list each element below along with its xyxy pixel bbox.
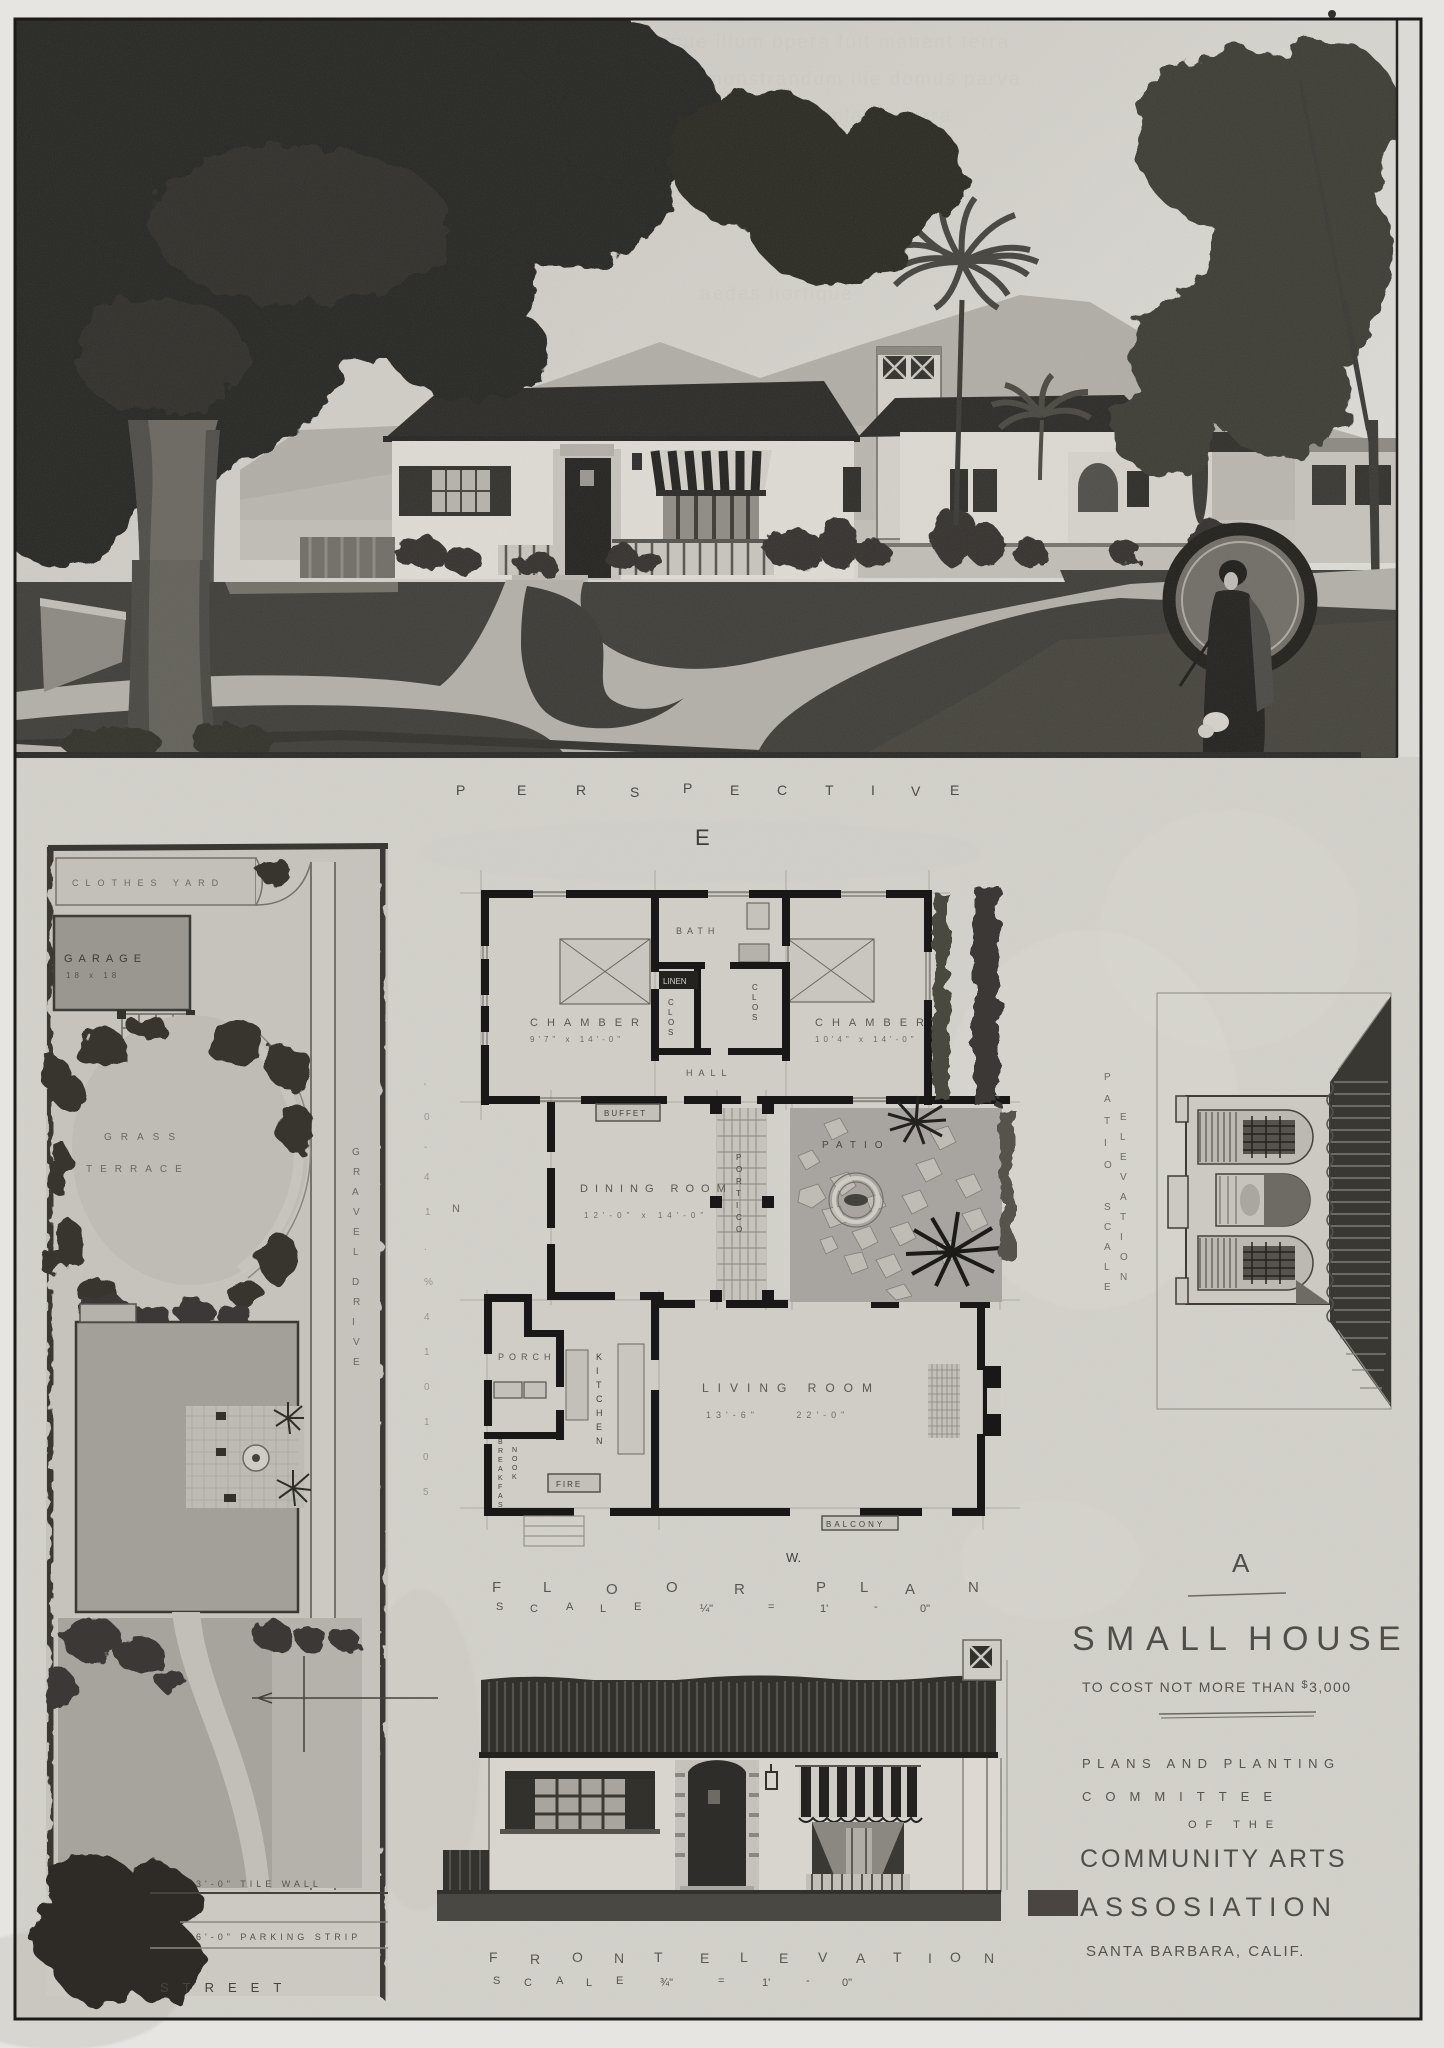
- svg-text:4: 4: [424, 1312, 430, 1323]
- svg-text:R: R: [530, 1951, 540, 1967]
- svg-text:E: E: [950, 782, 959, 798]
- svg-text:E: E: [1104, 1282, 1111, 1293]
- svg-text:O: O: [736, 1225, 742, 1234]
- svg-text:TO COST NOT MORE THAN $3,000: TO COST NOT MORE THAN $3,000: [1082, 1679, 1352, 1695]
- svg-text:12'-0" x 14'-0": 12'-0" x 14'-0": [584, 1211, 708, 1220]
- svg-text:O: O: [666, 1579, 678, 1596]
- svg-text:V: V: [353, 1337, 360, 1348]
- svg-text:R: R: [734, 1581, 745, 1598]
- svg-text:COMMUNITY ARTS: COMMUNITY ARTS: [1080, 1845, 1348, 1873]
- svg-text:T: T: [736, 1189, 741, 1198]
- svg-text:BUFFET: BUFFET: [604, 1109, 647, 1118]
- svg-text:A: A: [498, 1466, 503, 1473]
- svg-text:1': 1': [762, 1977, 770, 1989]
- svg-text:E: E: [634, 1601, 641, 1613]
- svg-text:5: 5: [423, 1487, 429, 1498]
- svg-text:N: N: [596, 1436, 603, 1446]
- svg-text:O: O: [950, 1949, 961, 1965]
- svg-text:HALL: HALL: [686, 1068, 733, 1078]
- svg-text:S: S: [1348, 1620, 1371, 1658]
- svg-text:S: S: [1072, 1620, 1095, 1658]
- svg-text:T: T: [825, 782, 834, 798]
- svg-text:O: O: [572, 1949, 583, 1965]
- svg-text:D: D: [352, 1277, 359, 1288]
- svg-text:S: S: [493, 1975, 500, 1987]
- svg-text:S: S: [496, 1601, 503, 1613]
- svg-text:¼": ¼": [700, 1603, 713, 1615]
- svg-text:O: O: [512, 1465, 518, 1472]
- svg-text:ASSOSIATION: ASSOSIATION: [1080, 1892, 1338, 1922]
- svg-text:BALCONY: BALCONY: [826, 1520, 885, 1529]
- svg-text:C: C: [752, 983, 758, 992]
- svg-text:C: C: [668, 998, 674, 1007]
- svg-text:F: F: [489, 1949, 498, 1965]
- svg-text:P: P: [456, 782, 465, 798]
- svg-text:=: =: [768, 1601, 774, 1613]
- svg-text:TERRACE: TERRACE: [86, 1164, 190, 1175]
- svg-text:C: C: [524, 1977, 532, 1989]
- svg-text:S: S: [498, 1502, 503, 1509]
- svg-text:1: 1: [424, 1417, 430, 1428]
- svg-text:E: E: [1378, 1620, 1401, 1658]
- svg-text:M: M: [1106, 1620, 1134, 1658]
- svg-text:1: 1: [425, 1207, 431, 1218]
- svg-text:C: C: [596, 1394, 603, 1404]
- svg-text:I: I: [928, 1950, 932, 1966]
- svg-text:T: T: [654, 1949, 663, 1965]
- svg-text:E: E: [779, 1950, 788, 1966]
- svg-text:L: L: [1208, 1620, 1227, 1658]
- svg-text:I: I: [736, 1201, 738, 1210]
- svg-text:P: P: [683, 780, 692, 796]
- svg-text:10'4" x 14'-0": 10'4" x 14'-0": [815, 1035, 918, 1044]
- svg-text:T: T: [893, 1949, 902, 1965]
- svg-text:O: O: [752, 1003, 758, 1012]
- svg-text:H: H: [596, 1408, 603, 1418]
- svg-text:I: I: [1104, 1138, 1107, 1149]
- svg-text:=: =: [718, 1975, 724, 1987]
- svg-text:A: A: [352, 1187, 359, 1198]
- svg-text:I: I: [871, 782, 875, 798]
- svg-text:K: K: [498, 1475, 503, 1482]
- svg-text:N: N: [968, 1579, 979, 1596]
- svg-text:A: A: [566, 1601, 574, 1613]
- svg-text:L: L: [668, 1008, 673, 1017]
- svg-text:V: V: [353, 1207, 360, 1218]
- svg-text:6'-0" PARKING STRIP: 6'-0" PARKING STRIP: [196, 1932, 361, 1942]
- svg-text:P: P: [1104, 1072, 1111, 1083]
- svg-text:-: -: [874, 1601, 878, 1613]
- svg-text:LINEN: LINEN: [663, 977, 687, 986]
- svg-text:S: S: [752, 1013, 757, 1022]
- svg-text:L: L: [1180, 1620, 1199, 1658]
- svg-text:O: O: [668, 1018, 674, 1027]
- svg-text:F: F: [498, 1484, 502, 1491]
- svg-text:.: .: [424, 1242, 427, 1253]
- svg-text:': ': [424, 1082, 426, 1093]
- svg-text:DINING ROOM: DINING ROOM: [580, 1183, 733, 1195]
- svg-text:0: 0: [423, 1452, 429, 1463]
- svg-text:L: L: [1104, 1262, 1110, 1273]
- svg-text:S: S: [1104, 1202, 1111, 1213]
- svg-text:W.: W.: [786, 1550, 801, 1565]
- svg-text:A: A: [905, 1581, 915, 1598]
- svg-text:18 x 18: 18 x 18: [66, 971, 120, 980]
- svg-text:V: V: [1120, 1172, 1127, 1183]
- svg-text:S: S: [630, 784, 639, 800]
- svg-text:R: R: [576, 782, 586, 798]
- svg-text:0": 0": [842, 1977, 852, 1989]
- svg-text:N: N: [512, 1447, 517, 1454]
- svg-text:E: E: [353, 1227, 360, 1238]
- svg-text:N: N: [984, 1950, 994, 1966]
- svg-text:CHAMBER: CHAMBER: [815, 1017, 933, 1029]
- svg-text:I: I: [596, 1366, 599, 1376]
- svg-text:U: U: [1316, 1620, 1341, 1658]
- svg-text:C: C: [736, 1213, 742, 1222]
- svg-text:L: L: [353, 1247, 359, 1258]
- svg-text:F: F: [492, 1579, 501, 1596]
- svg-text:3'-0" TILE WALL: 3'-0" TILE WALL: [196, 1879, 322, 1889]
- svg-text:A: A: [856, 1950, 866, 1966]
- svg-text:B: B: [498, 1439, 503, 1446]
- svg-text:K: K: [596, 1352, 602, 1362]
- svg-text:R: R: [498, 1448, 503, 1455]
- svg-text:FIRE: FIRE: [556, 1480, 582, 1489]
- svg-text:0: 0: [424, 1382, 430, 1393]
- svg-text:I: I: [352, 1317, 355, 1328]
- svg-text:O: O: [1282, 1620, 1308, 1658]
- svg-text:T: T: [1104, 1116, 1110, 1127]
- svg-text:PLANS AND PLANTING: PLANS AND PLANTING: [1082, 1756, 1341, 1771]
- svg-text:BATH: BATH: [676, 926, 719, 936]
- svg-text:-: -: [806, 1975, 810, 1987]
- svg-text:13'-6" 22'-0": 13'-6" 22'-0": [706, 1410, 849, 1420]
- svg-text:K: K: [512, 1474, 517, 1481]
- svg-text:V: V: [818, 1949, 828, 1965]
- svg-text:E: E: [1120, 1152, 1127, 1163]
- svg-text:V: V: [911, 783, 921, 799]
- svg-text:O: O: [1104, 1160, 1112, 1171]
- svg-text:P: P: [736, 1153, 741, 1162]
- svg-text:1: 1: [424, 1347, 430, 1358]
- svg-text:L: L: [860, 1579, 868, 1596]
- svg-text:R: R: [353, 1297, 360, 1308]
- svg-text:E: E: [700, 1950, 709, 1966]
- svg-text:N: N: [452, 1203, 460, 1215]
- svg-text:CLOTHES YARD: CLOTHES YARD: [72, 878, 225, 888]
- svg-text:C: C: [530, 1603, 538, 1615]
- svg-text:SANTA BARBARA, CALIF.: SANTA BARBARA, CALIF.: [1086, 1943, 1305, 1960]
- svg-text:L: L: [586, 1977, 592, 1989]
- svg-text:E: E: [498, 1457, 503, 1464]
- svg-text:O: O: [512, 1456, 518, 1463]
- svg-text:N: N: [614, 1950, 624, 1966]
- svg-text:R: R: [736, 1177, 742, 1186]
- svg-text:L: L: [740, 1949, 748, 1965]
- svg-text:O: O: [1120, 1252, 1128, 1263]
- svg-text:CHAMBER: CHAMBER: [530, 1017, 648, 1029]
- svg-text:STREET: STREET: [160, 1980, 295, 1995]
- svg-text:E: E: [517, 782, 526, 798]
- svg-text:E: E: [695, 825, 710, 850]
- svg-text:O: O: [606, 1581, 618, 1598]
- svg-text:E: E: [730, 782, 739, 798]
- svg-text:L: L: [1120, 1132, 1126, 1143]
- svg-text:COMMITTEE: COMMITTEE: [1082, 1789, 1286, 1804]
- svg-text:C: C: [1104, 1222, 1111, 1233]
- svg-text:L: L: [752, 993, 757, 1002]
- svg-text:N: N: [1120, 1272, 1127, 1283]
- svg-text:4: 4: [424, 1172, 430, 1183]
- svg-text:I: I: [1120, 1232, 1123, 1243]
- svg-text:OF THE: OF THE: [1188, 1819, 1282, 1831]
- svg-text:A: A: [556, 1975, 564, 1987]
- svg-text:T: T: [1120, 1212, 1126, 1223]
- svg-text:H: H: [1248, 1620, 1273, 1658]
- svg-text:A: A: [1146, 1620, 1169, 1658]
- svg-text:A: A: [1104, 1094, 1111, 1105]
- svg-text:1': 1': [820, 1603, 828, 1615]
- svg-text:E: E: [1120, 1112, 1127, 1123]
- svg-text:A: A: [1232, 1548, 1250, 1578]
- svg-text:9'7" x 14'-0": 9'7" x 14'-0": [530, 1035, 624, 1044]
- svg-text:L: L: [543, 1579, 551, 1596]
- svg-text:R: R: [353, 1167, 360, 1178]
- svg-text:PATIO: PATIO: [822, 1140, 891, 1151]
- svg-text:0: 0: [424, 1112, 430, 1123]
- svg-text:C: C: [777, 782, 787, 798]
- svg-text:E: E: [616, 1975, 623, 1987]
- svg-text:P: P: [816, 1579, 826, 1596]
- svg-text:A: A: [1104, 1242, 1111, 1253]
- svg-text:E: E: [353, 1357, 360, 1368]
- svg-text:G: G: [352, 1147, 360, 1158]
- svg-text:A: A: [498, 1493, 503, 1500]
- svg-text:A: A: [1120, 1192, 1127, 1203]
- svg-text:0": 0": [920, 1603, 930, 1615]
- svg-text:GRASS: GRASS: [104, 1132, 184, 1143]
- svg-text:E: E: [596, 1422, 602, 1432]
- svg-text:S: S: [668, 1028, 673, 1037]
- svg-text:GARAGE: GARAGE: [64, 953, 147, 965]
- svg-text:LIVING ROOM: LIVING ROOM: [702, 1381, 881, 1395]
- svg-text:O: O: [736, 1165, 742, 1174]
- svg-text:%: %: [424, 1277, 433, 1288]
- svg-text:PORCH: PORCH: [498, 1352, 556, 1362]
- svg-text:-: -: [424, 1142, 427, 1153]
- svg-text:¾": ¾": [660, 1977, 673, 1989]
- svg-text:T: T: [596, 1380, 602, 1390]
- svg-text:L: L: [600, 1603, 606, 1615]
